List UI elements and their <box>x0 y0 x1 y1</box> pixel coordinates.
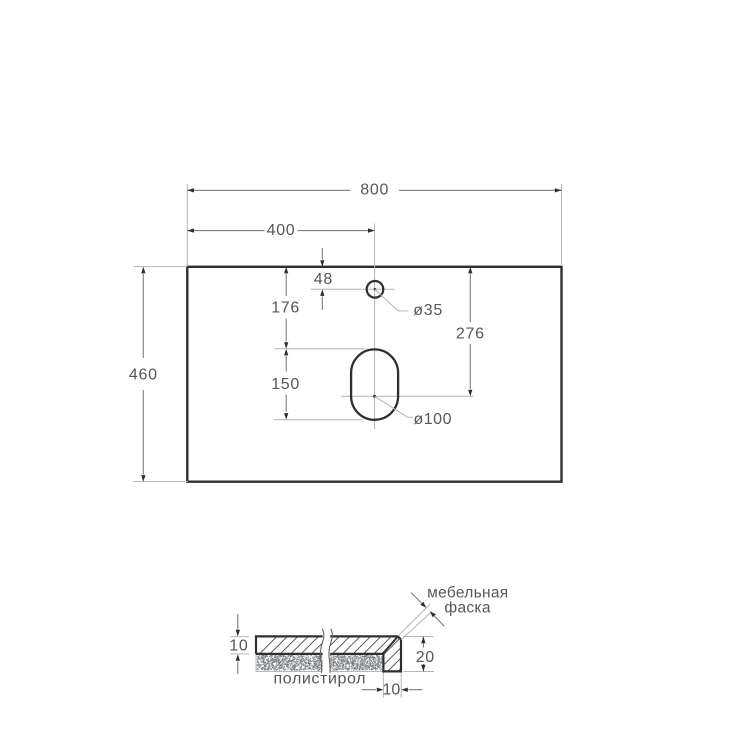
svg-text:10: 10 <box>383 681 401 698</box>
svg-text:ø35: ø35 <box>413 302 443 319</box>
svg-text:фаска: фаска <box>444 600 490 617</box>
svg-text:48: 48 <box>314 271 333 288</box>
svg-text:ø100: ø100 <box>414 411 452 428</box>
svg-text:800: 800 <box>360 182 389 199</box>
svg-text:460: 460 <box>129 367 158 384</box>
svg-text:полистирол: полистирол <box>274 670 367 687</box>
svg-text:400: 400 <box>267 222 296 239</box>
svg-text:276: 276 <box>456 325 485 342</box>
svg-text:20: 20 <box>416 649 435 666</box>
svg-text:176: 176 <box>271 300 300 317</box>
svg-text:10: 10 <box>229 637 248 654</box>
svg-text:150: 150 <box>271 376 300 393</box>
